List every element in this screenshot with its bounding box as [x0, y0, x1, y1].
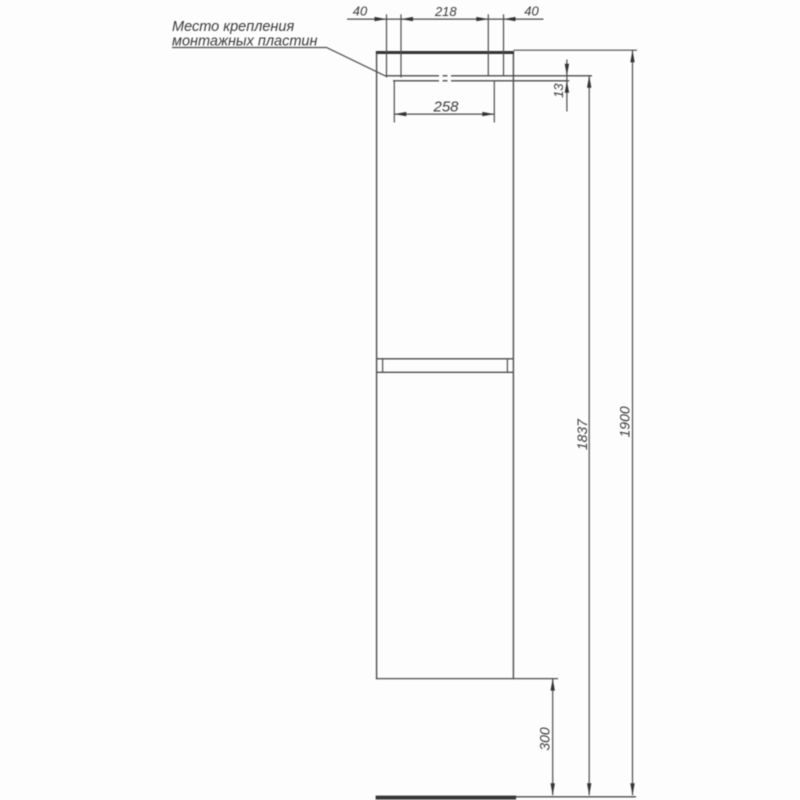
svg-text:1837: 1837	[574, 418, 590, 450]
svg-text:40: 40	[524, 3, 539, 18]
svg-text:1900: 1900	[617, 406, 633, 437]
svg-text:300: 300	[536, 727, 552, 751]
svg-text:218: 218	[434, 4, 457, 19]
svg-text:13: 13	[551, 83, 566, 98]
svg-text:Место крепления: Место крепления	[172, 19, 294, 35]
svg-text:40: 40	[353, 3, 368, 18]
svg-text:258: 258	[432, 98, 459, 115]
